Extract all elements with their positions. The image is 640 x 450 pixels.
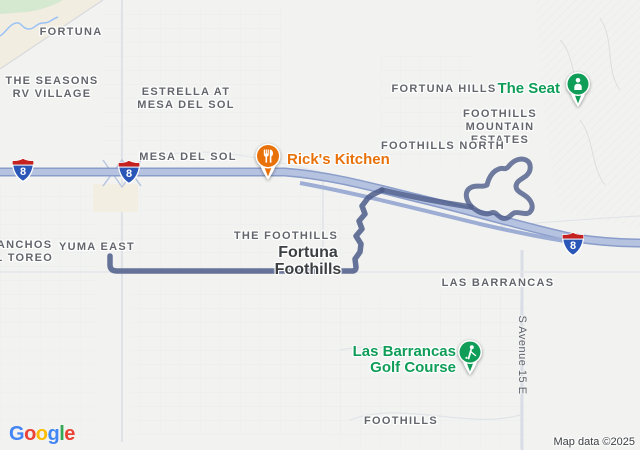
street-grid [0, 185, 95, 330]
shield-route-number: 8 [562, 240, 584, 252]
map-canvas[interactable] [0, 0, 640, 450]
terrain-texture [535, 0, 640, 230]
shield-route-number: 8 [118, 168, 140, 180]
google-logo[interactable]: Google [9, 423, 75, 446]
interchange-parcel [93, 184, 138, 212]
logo-letter: o [36, 423, 48, 445]
map-attribution: Map data ©2025 [554, 436, 636, 448]
logo-letter: o [24, 423, 36, 445]
street-grid [104, 8, 284, 158]
golf-pin-icon[interactable] [455, 339, 485, 377]
logo-letter: G [9, 423, 24, 445]
street-grid [380, 55, 475, 163]
logo-letter: e [64, 423, 75, 445]
street-grid [130, 285, 360, 435]
i8-shield-icon: 8 [12, 158, 34, 182]
boundary-loop [466, 159, 532, 218]
poi-label-las-barrancas-golf[interactable]: Las Barrancas Golf Course [353, 344, 456, 376]
road-label-s-avenue-15e: S Avenue 15 E [516, 315, 528, 394]
i8-shield-icon: 8 [562, 232, 584, 256]
poi-label-ricks-kitchen[interactable]: Rick's Kitchen [287, 152, 390, 168]
attraction-pin-icon[interactable] [563, 71, 593, 109]
logo-letter: g [48, 423, 60, 445]
restaurant-pin-icon[interactable] [253, 143, 283, 181]
shield-route-number: 8 [12, 166, 34, 178]
poi-label-the-seat[interactable]: The Seat [497, 81, 560, 97]
i8-shield-icon: 8 [118, 160, 140, 184]
map-viewport[interactable]: FORTUNA THE SEASONS RV VILLAGE ESTRELLA … [0, 0, 640, 450]
street-grid [440, 292, 520, 332]
